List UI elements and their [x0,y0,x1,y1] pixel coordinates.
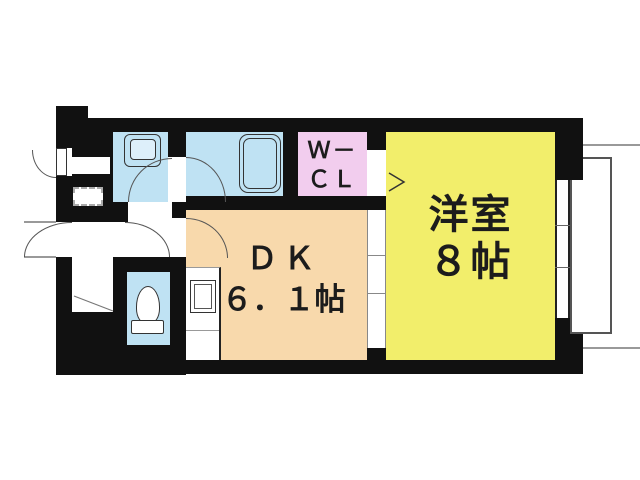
wall-top [56,118,583,132]
washroom-door-opening [128,202,172,222]
wall-right-corner-bottom-b [555,334,583,374]
wall-bottom-left [56,345,186,375]
wall-toilet-top [113,257,186,272]
genkan-floor [72,257,113,312]
balcony-window [555,180,570,318]
balcony-divider-bottom [583,347,640,349]
window-tick-1 [555,225,570,226]
western-room-size: ８帖 [386,239,555,286]
wcl-door-opening [367,150,386,196]
wall-wash-bath-divider [168,132,186,157]
side-door-opening [70,157,110,174]
wall-left-upper [56,132,72,148]
bathtub-inner [243,138,277,189]
western-room-name: 洋室 [386,192,555,239]
wall-left-lower [56,257,72,345]
wall-bottom-main [186,360,583,374]
label-wcl: Ｗ－ ＣＬ [298,136,367,194]
side-door-arc [32,150,56,178]
balcony [570,157,612,334]
label-western-room: 洋室 ８帖 [386,192,555,286]
wcl-line2: ＣＬ [298,165,367,194]
kitchen-shelf-line [186,330,219,331]
wall-top-left-block [56,106,88,132]
toilet-tank [131,320,164,334]
dk-room-name: ＤＫ [196,238,371,279]
wall-corridor-right-lower [170,257,186,360]
wcl-line1: Ｗ－ [298,136,367,165]
dk-room-size: ６．１帖 [196,279,371,320]
entry-landing-line-top [24,221,56,223]
balcony-divider-top [583,144,640,146]
side-door-leaf [56,148,67,176]
washing-machine-pan-icon [73,187,103,206]
washbasin-bowl [130,139,156,160]
wall-left-mid [56,176,72,222]
wall-right-corner-top [555,118,583,180]
floorplan: 洋室 ８帖 ＤＫ ６．１帖 Ｗ－ ＣＬ [0,0,640,480]
label-dk-room: ＤＫ ６．１帖 [196,238,371,320]
wall-bath-wcl-divider [283,132,298,196]
window-tick-2 [555,267,570,268]
dk-door-opening [170,218,186,257]
wall-wcl-right-top [367,132,386,150]
toilet-icon [136,286,160,324]
wall-washroom-bottom [102,202,128,222]
wall-below-genkan [72,312,113,345]
